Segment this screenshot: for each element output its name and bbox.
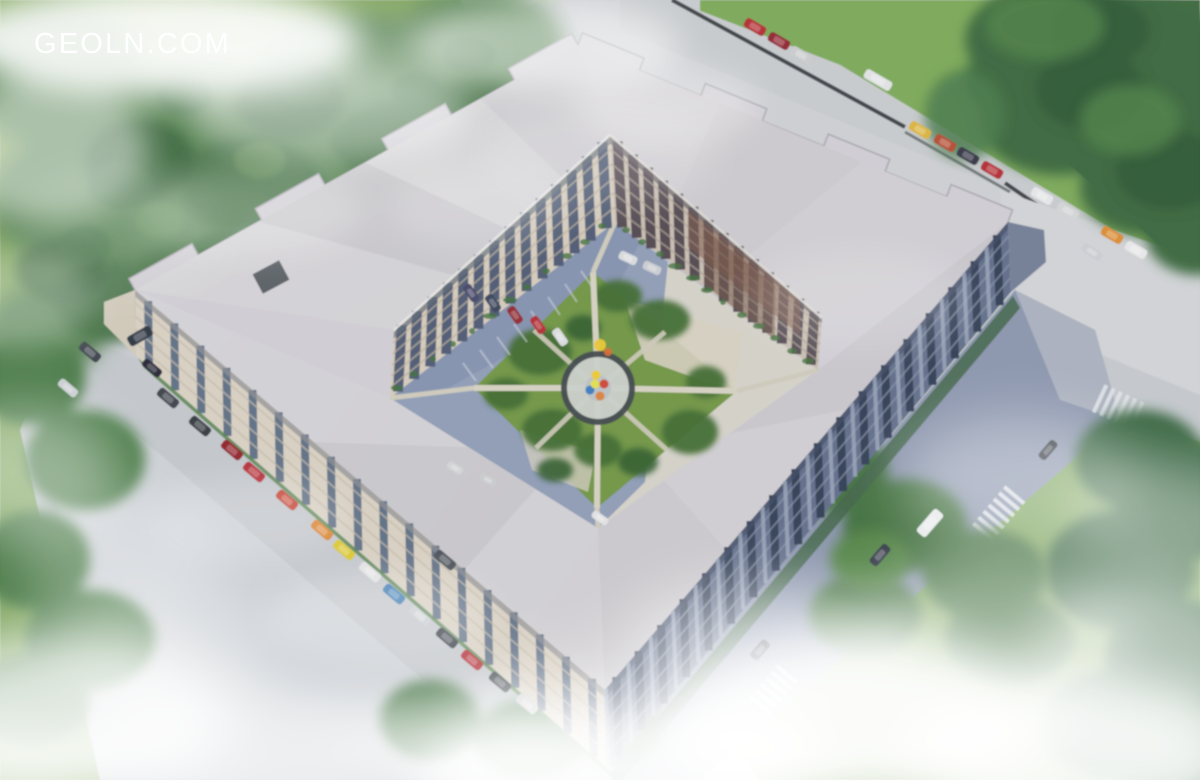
svg-text:GEOLN.COM: GEOLN.COM [34,28,231,60]
